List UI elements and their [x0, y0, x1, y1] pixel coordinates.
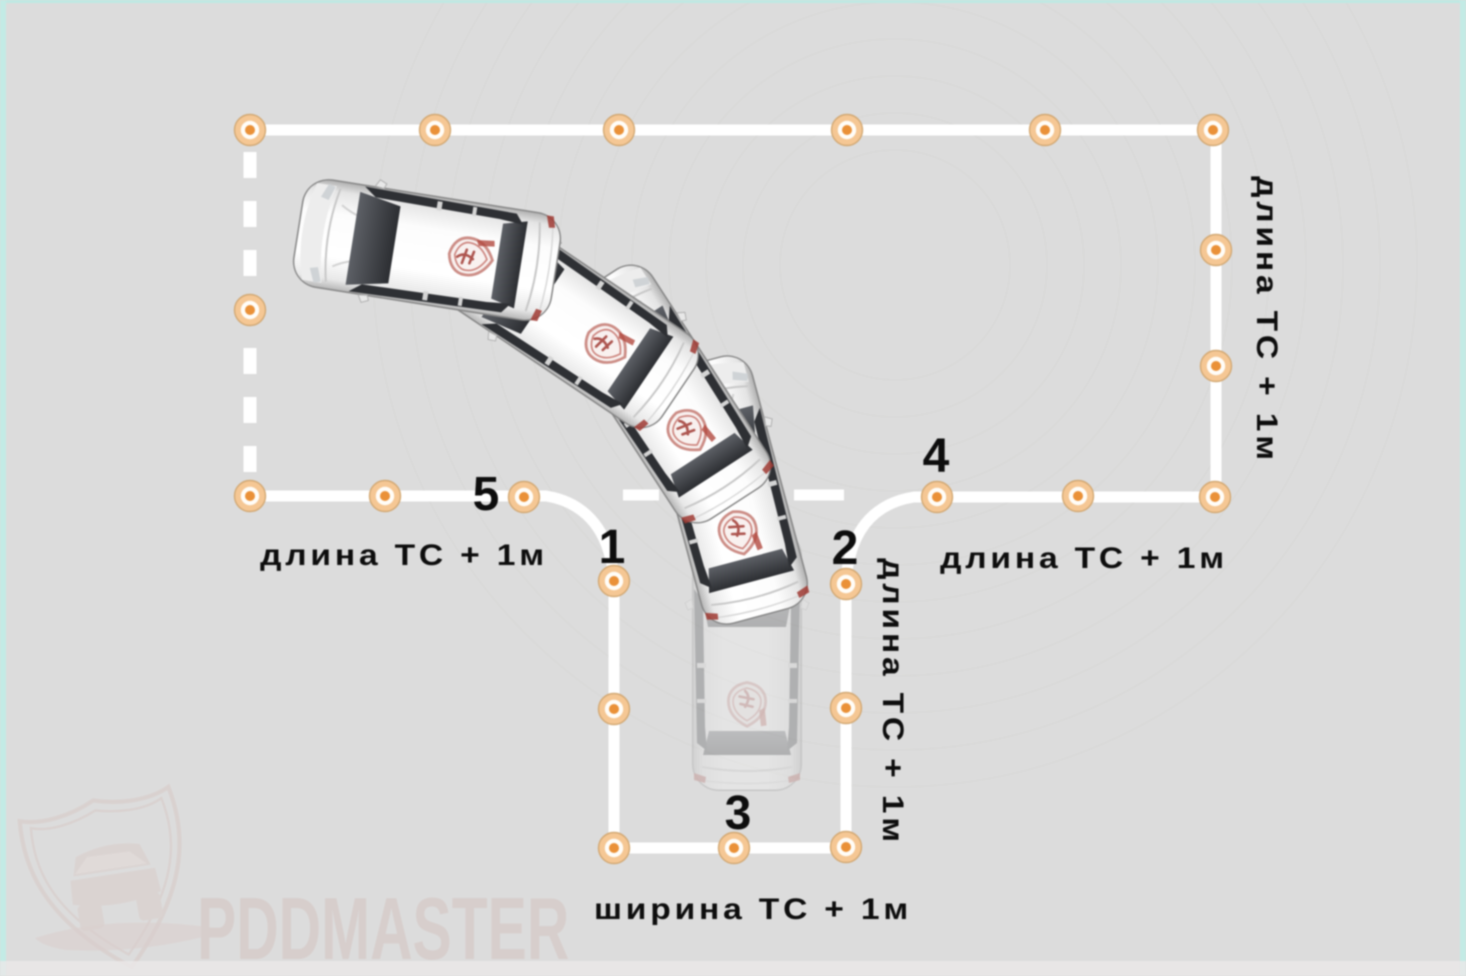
svg-text:ширина ТС + 1м: ширина ТС + 1м: [594, 892, 912, 926]
svg-text:4: 4: [923, 430, 950, 483]
svg-text:3: 3: [725, 787, 752, 840]
svg-text:1: 1: [599, 521, 626, 574]
svg-text:длина ТС + 1м: длина ТС + 1м: [876, 558, 910, 846]
svg-text:длина ТС + 1м: длина ТС + 1м: [260, 538, 548, 572]
svg-text:5: 5: [473, 468, 500, 521]
svg-text:длина ТС + 1м: длина ТС + 1м: [940, 541, 1228, 575]
svg-text:длина ТС + 1м: длина ТС + 1м: [1250, 176, 1284, 464]
svg-text:2: 2: [832, 522, 859, 575]
